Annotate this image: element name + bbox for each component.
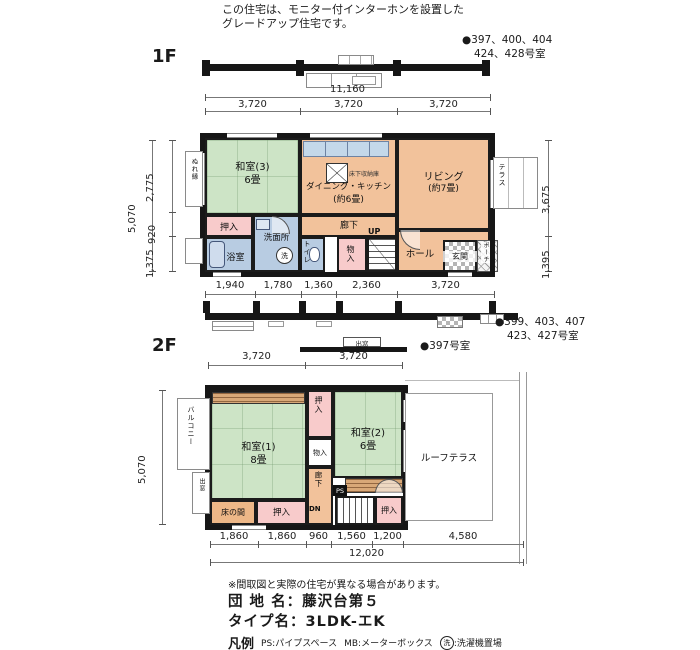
dim-tick <box>205 291 206 298</box>
entrance-door-opening <box>448 272 472 277</box>
wall-pillar <box>393 60 401 76</box>
floor-label-2f: 2F <box>152 335 177 358</box>
label-dn: DN <box>309 505 321 513</box>
dim-2f-left-total: 5,070 <box>137 455 148 484</box>
dim-1f-bottom-5: 3,720 <box>397 280 494 291</box>
disclaimer-text: ※間取図と実際の住宅が異なる場合があります。 <box>228 580 445 593</box>
legend-mb: MB:メーターボックス <box>344 636 433 649</box>
washer-circle-icon: 洗 <box>440 636 454 650</box>
wall-pillar <box>395 301 402 313</box>
dim-tick <box>402 362 403 369</box>
service-box <box>185 238 203 264</box>
dim-1f-left-1: 2,775 <box>145 173 156 202</box>
estate-name: 団 地 名：藤沢台第５ <box>228 593 380 611</box>
label-up: UP <box>368 227 380 236</box>
dim-1f-right-1: 3,675 <box>541 185 552 214</box>
dim-1f-right-2: 1,395 <box>541 250 552 279</box>
floor-label-1f: 1F <box>152 46 177 69</box>
label-demado-2f: 出窓 <box>197 478 206 492</box>
header-note-line2: グレードアップ住宅です。 <box>222 17 353 31</box>
dim-line <box>205 97 490 98</box>
dim-1f-left-3: 1,375 <box>145 249 156 278</box>
unit-number-397: ●397号室 <box>420 340 470 353</box>
wall-pillar <box>489 301 496 313</box>
dim-2f-total: 12,020 <box>210 548 523 559</box>
unit-numbers-bottom-line2: 423、427号室 <box>507 330 579 343</box>
legend-washer-text: :洗濯機置場 <box>454 636 502 649</box>
wall-pillar <box>202 60 210 76</box>
dim-tick <box>397 108 398 115</box>
south-wall-band <box>205 313 518 320</box>
dim-tick <box>331 541 332 548</box>
legend-ps: PS:パイプスペース <box>261 636 337 649</box>
label-toilet: トイレ <box>302 240 312 264</box>
window-detail <box>212 321 254 331</box>
dim-tick <box>301 291 302 298</box>
stairs-up <box>367 237 397 272</box>
dim-1f-top-1: 3,720 <box>205 99 300 110</box>
label-terrace: テラス <box>497 163 507 187</box>
dim-1f-left-total: 5,070 <box>127 204 138 233</box>
label-closet-2f-right: 押入 <box>375 505 403 516</box>
legend-title: 凡例 <box>228 633 254 650</box>
label-corridor-2f: 廊下 <box>313 471 324 488</box>
label-closet-1f: 押入 <box>205 220 253 233</box>
dim-1f-left-2: 920 <box>147 225 158 244</box>
dim-2f-bottom-3: 960 <box>306 531 331 542</box>
dim-1f-bottom-1: 1,940 <box>205 280 255 291</box>
dim-tick <box>306 541 307 548</box>
label-closet-2f-top: 押入 <box>313 396 324 414</box>
dim-line <box>205 111 490 112</box>
dim-tick <box>169 271 176 272</box>
dim-tick <box>305 362 306 369</box>
dim-tick <box>545 140 552 141</box>
unit-numbers-top-line1: ●397、400、404 <box>462 34 552 47</box>
dim-2f-bottom-1: 1,860 <box>210 531 258 542</box>
vanity-icon <box>256 219 270 230</box>
dim-2f-bottom-2: 1,860 <box>258 531 306 542</box>
floor-plan-page: この住宅は、モニター付インターホンを設置した グレードアップ住宅です。 ●397… <box>0 0 700 650</box>
label-dk-size: (約6畳) <box>300 192 397 205</box>
dim-tick <box>169 236 176 237</box>
wall-pillar <box>253 301 260 313</box>
dim-tick <box>494 291 495 298</box>
label-porch: ポーチ <box>481 242 490 263</box>
label-storage-1f: 物入 <box>345 245 356 263</box>
dim-tick <box>169 140 176 141</box>
dim-tick <box>149 140 156 141</box>
wall-pillar <box>299 301 306 313</box>
label-washroom: 洗面所 <box>253 231 300 243</box>
dim-tick <box>300 108 301 115</box>
dim-2f-bottom-4: 1,560 <box>331 531 372 542</box>
entrance-detail <box>437 316 463 328</box>
dim-2f-top-1: 3,720 <box>208 351 305 362</box>
dim-tick <box>490 94 491 101</box>
label-closet-2f-left: 押入 <box>256 506 307 518</box>
underfloor-storage-label: 床下収納庫 <box>349 169 379 178</box>
legend-washer: 洗 :洗濯機置場 <box>440 636 502 650</box>
dim-line <box>205 294 494 295</box>
dim-tick <box>210 559 211 566</box>
dim-tick <box>159 390 166 391</box>
bay-window-top <box>338 55 374 65</box>
dim-tick <box>258 541 259 548</box>
window-opening <box>310 133 382 138</box>
label-washitsu2-size: 6畳 <box>333 437 403 452</box>
label-demado-strip: 出窓 <box>343 338 381 348</box>
washing-machine-icon: 洗 <box>276 247 293 264</box>
dim-1f-bottom-3: 1,360 <box>301 280 336 291</box>
unit-numbers-bottom-line1: ●399、403、407 <box>495 316 585 329</box>
label-storage-2f: 物入 <box>307 448 333 458</box>
dim-line <box>162 390 163 525</box>
label-entrance: 玄関 <box>443 251 477 262</box>
legend-row: 凡例 PS:パイプスペース MB:メーターボックス 洗 :洗濯機置場 <box>228 633 502 650</box>
shelf-strip <box>212 392 305 404</box>
dim-tick <box>372 541 373 548</box>
dim-2f-top-2: 3,720 <box>305 351 402 362</box>
north-wall-band <box>205 64 490 71</box>
dim-tick <box>208 362 209 369</box>
kitchen-counter <box>303 141 389 157</box>
wall-pillar <box>203 301 210 313</box>
dim-tick <box>523 559 524 566</box>
wall-pillar <box>296 60 304 76</box>
dim-tick <box>205 108 206 115</box>
dim-tick <box>159 524 166 525</box>
dim-tick <box>545 236 552 237</box>
label-tokonoma: 床の間 <box>210 507 256 518</box>
dim-1f-top-2: 3,720 <box>300 99 397 110</box>
dim-tick <box>169 212 176 213</box>
window-detail <box>316 321 332 327</box>
dim-tick <box>490 108 491 115</box>
stairs-down <box>335 496 375 525</box>
dim-tick <box>403 541 404 548</box>
header-note-line1: この住宅は、モニター付インターホンを設置した <box>222 3 464 17</box>
dim-tick <box>255 291 256 298</box>
label-living-size: (約7畳) <box>397 181 490 194</box>
window-opening <box>213 272 241 277</box>
label-bath: 浴室 <box>218 250 253 263</box>
label-roof-terrace: ルーフテラス <box>405 450 493 464</box>
dim-tick <box>523 541 524 548</box>
dim-1f-total-width: 11,160 <box>205 84 490 95</box>
label-washitsu1-size: 8畳 <box>210 451 307 466</box>
dim-line <box>172 140 173 271</box>
dim-tick <box>210 541 211 548</box>
dim-2f-bottom-6: 4,580 <box>403 531 523 542</box>
boundary-line <box>405 380 519 381</box>
label-corridor-1f: 廊下 <box>340 218 358 231</box>
pipe-space-box: PS <box>333 485 347 496</box>
window-opening <box>227 133 277 138</box>
label-balcony: バルコニー <box>186 406 196 446</box>
label-hall: ホール <box>397 246 443 260</box>
dim-tick <box>397 291 398 298</box>
wall-pillar <box>482 60 490 76</box>
dim-1f-top-3: 3,720 <box>397 99 490 110</box>
dim-1f-bottom-4: 2,360 <box>336 280 397 291</box>
window-detail <box>268 321 284 327</box>
dim-tick <box>336 291 337 298</box>
wall-pillar <box>336 301 343 313</box>
dim-1f-bottom-2: 1,780 <box>255 280 301 291</box>
dim-line <box>210 562 523 563</box>
type-name: タイプ名：3LDK-エK <box>228 613 386 631</box>
label-washitsu3-size: 6畳 <box>205 171 300 186</box>
label-dk: ダイニング・キッチン <box>300 180 397 192</box>
window-opening <box>232 525 266 530</box>
dim-2f-bottom-5: 1,200 <box>372 531 403 542</box>
label-nureen: ぬれ縁 <box>189 158 199 181</box>
dim-line <box>210 544 523 545</box>
